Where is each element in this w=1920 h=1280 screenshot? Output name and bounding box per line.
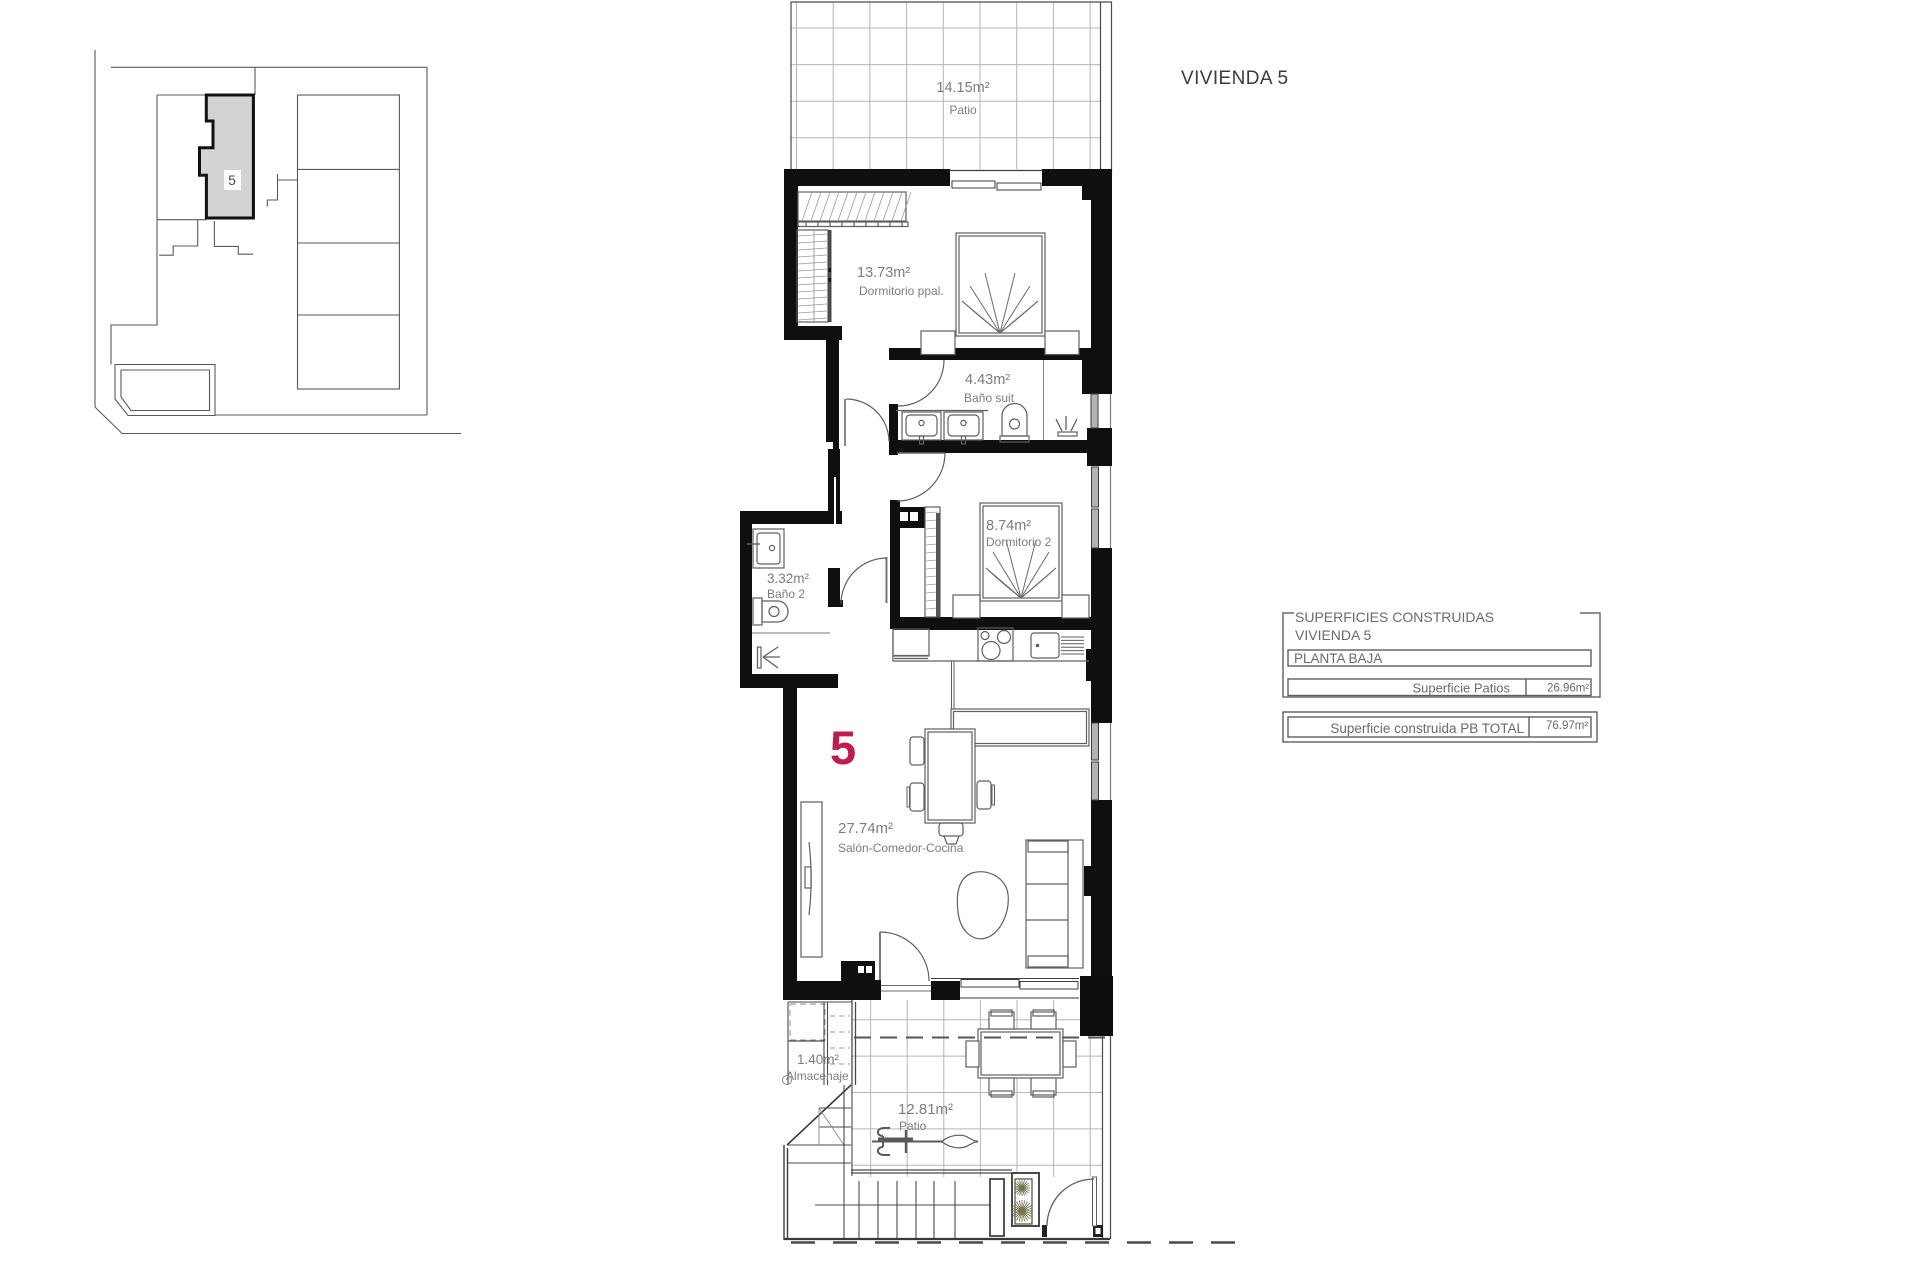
svg-text:5: 5 bbox=[830, 721, 856, 774]
svg-text:Patio: Patio bbox=[949, 103, 977, 117]
svg-text:VIVIENDA 5: VIVIENDA 5 bbox=[1295, 627, 1371, 643]
svg-text:8.74m²: 8.74m² bbox=[986, 518, 1031, 534]
svg-text:27.74m²: 27.74m² bbox=[838, 820, 893, 837]
svg-text:3.32m²: 3.32m² bbox=[767, 571, 810, 586]
svg-text:Superficie Patios: Superficie Patios bbox=[1412, 681, 1510, 696]
svg-text:VIVIENDA 5: VIVIENDA 5 bbox=[1181, 68, 1289, 89]
svg-text:Superficie construida PB TOTAL: Superficie construida PB TOTAL bbox=[1330, 721, 1524, 736]
svg-text:12.81m²: 12.81m² bbox=[898, 1101, 953, 1118]
svg-text:Salón-Comedor-Cocina: Salón-Comedor-Cocina bbox=[838, 841, 964, 855]
svg-text:26.96m²: 26.96m² bbox=[1547, 683, 1589, 695]
svg-text:Dormitorio 2: Dormitorio 2 bbox=[986, 535, 1052, 549]
svg-text:Baño 2: Baño 2 bbox=[767, 587, 805, 601]
svg-text:14.15m²: 14.15m² bbox=[936, 80, 989, 96]
svg-text:5: 5 bbox=[228, 172, 236, 188]
svg-text:Baño suit: Baño suit bbox=[964, 391, 1015, 405]
svg-text:Patio: Patio bbox=[899, 1119, 927, 1133]
svg-text:1.40m²: 1.40m² bbox=[797, 1052, 840, 1067]
svg-text:SUPERFICIES CONSTRUIDAS: SUPERFICIES CONSTRUIDAS bbox=[1295, 609, 1494, 625]
svg-text:PLANTA BAJA: PLANTA BAJA bbox=[1294, 651, 1382, 666]
svg-text:76.97m²: 76.97m² bbox=[1546, 720, 1588, 732]
svg-text:13.73m²: 13.73m² bbox=[857, 265, 910, 281]
svg-text:Dormitorio ppal.: Dormitorio ppal. bbox=[859, 284, 944, 298]
svg-text:4.43m²: 4.43m² bbox=[965, 372, 1010, 388]
svg-text:Almacenaje: Almacenaje bbox=[786, 1069, 849, 1083]
